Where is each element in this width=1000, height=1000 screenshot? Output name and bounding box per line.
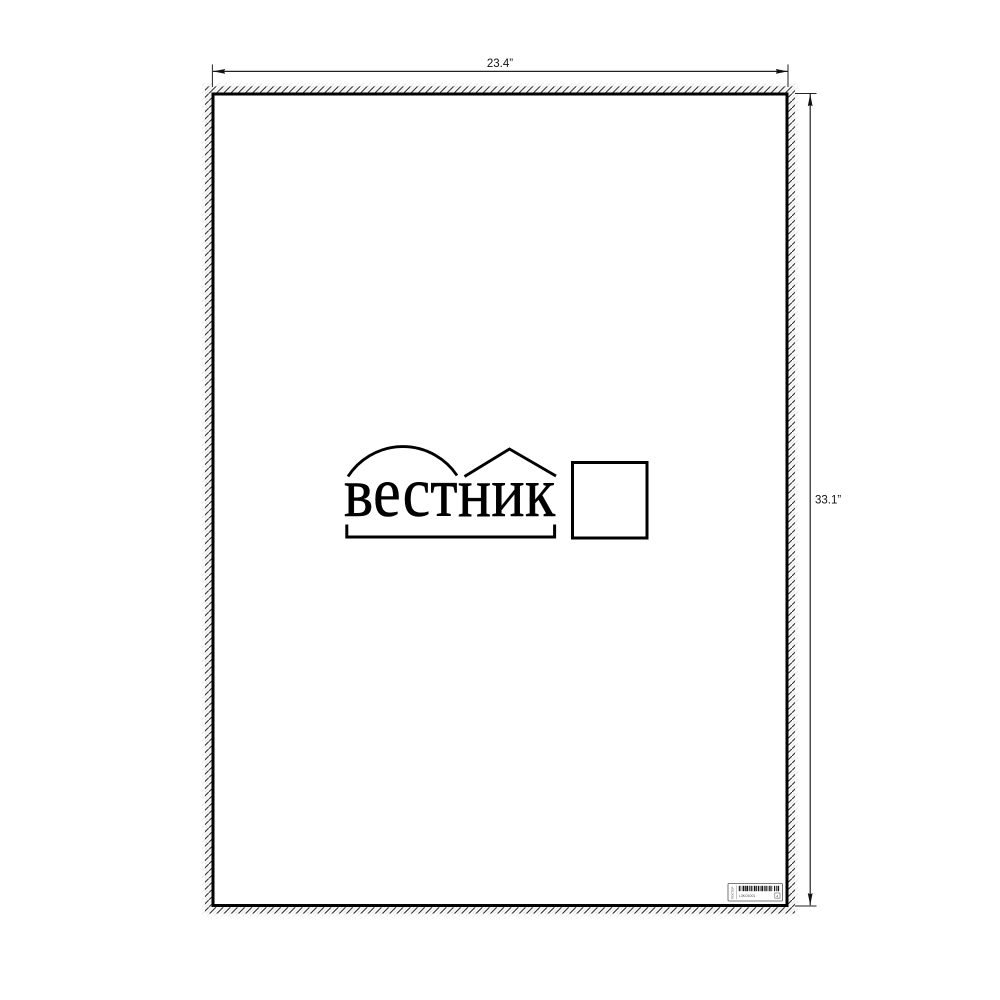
svg-text:L3KO1001: L3KO1001 <box>739 894 755 898</box>
svg-text:33.1”: 33.1” <box>815 495 841 507</box>
svg-text:4: 4 <box>776 894 778 898</box>
svg-text:23.4”: 23.4” <box>487 58 513 70</box>
svg-text:ПОСТЕР: ПОСТЕР <box>731 887 735 899</box>
